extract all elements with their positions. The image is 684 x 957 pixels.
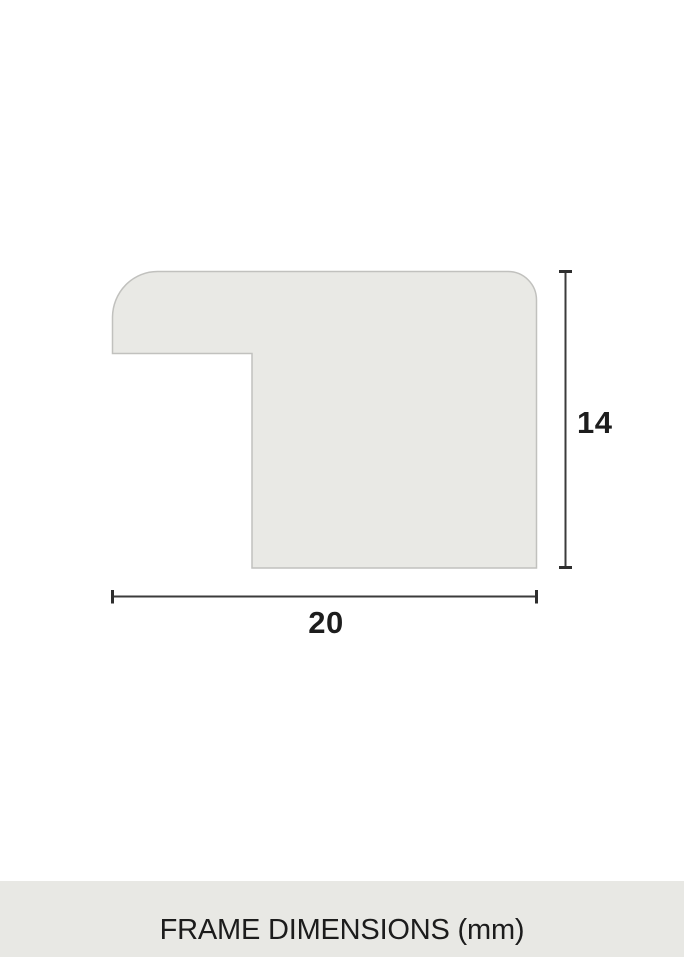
width-dimension-label: 20 (308, 605, 343, 640)
footer-title: FRAME DIMENSIONS (mm) (160, 914, 525, 947)
frame-profile-shape (113, 272, 537, 569)
frame-dimensions-page: 14 20 FRAME DIMENSIONS (mm) (0, 0, 684, 957)
width-dimension: 20 (113, 590, 537, 640)
footer-bar: FRAME DIMENSIONS (mm) (0, 881, 684, 957)
height-dimension-label: 14 (577, 405, 613, 440)
frame-profile-diagram: 14 20 (0, 0, 684, 881)
height-dimension: 14 (559, 272, 613, 568)
